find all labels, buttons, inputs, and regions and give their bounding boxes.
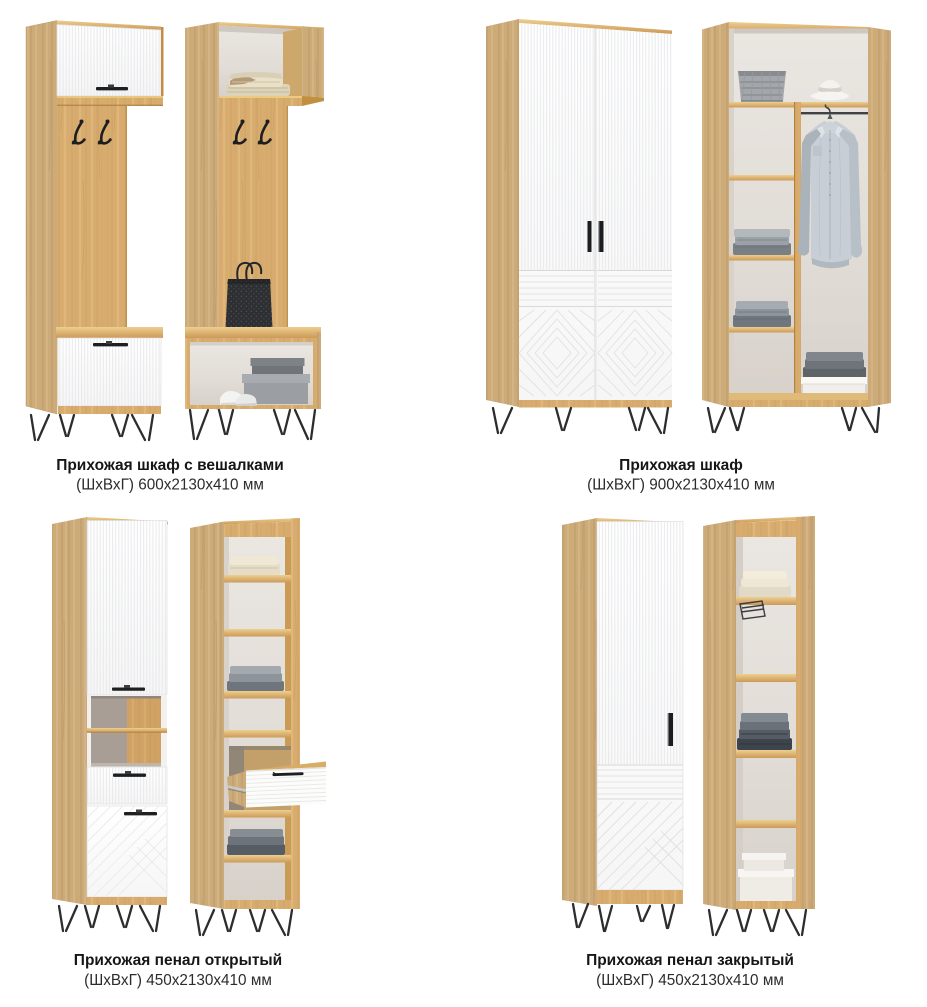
svg-text:Прихожая пенал закрытый: Прихожая пенал закрытый bbox=[586, 952, 794, 969]
svg-text:Прихожая шкаф: Прихожая шкаф bbox=[619, 457, 743, 474]
svg-text:(ШхВхГ) 450х2130х410 мм: (ШхВхГ) 450х2130х410 мм bbox=[84, 972, 272, 989]
svg-text:(ШхВхГ) 900х2130х410 мм: (ШхВхГ) 900х2130х410 мм bbox=[587, 477, 775, 494]
svg-text:Прихожая шкаф с вешалками: Прихожая шкаф с вешалками bbox=[56, 457, 284, 474]
svg-text:(ШхВхГ) 450х2130х410 мм: (ШхВхГ) 450х2130х410 мм bbox=[596, 972, 784, 989]
svg-text:Прихожая пенал открытый: Прихожая пенал открытый bbox=[74, 952, 282, 969]
svg-text:(ШхВхГ) 600х2130х410 мм: (ШхВхГ) 600х2130х410 мм bbox=[76, 477, 264, 494]
